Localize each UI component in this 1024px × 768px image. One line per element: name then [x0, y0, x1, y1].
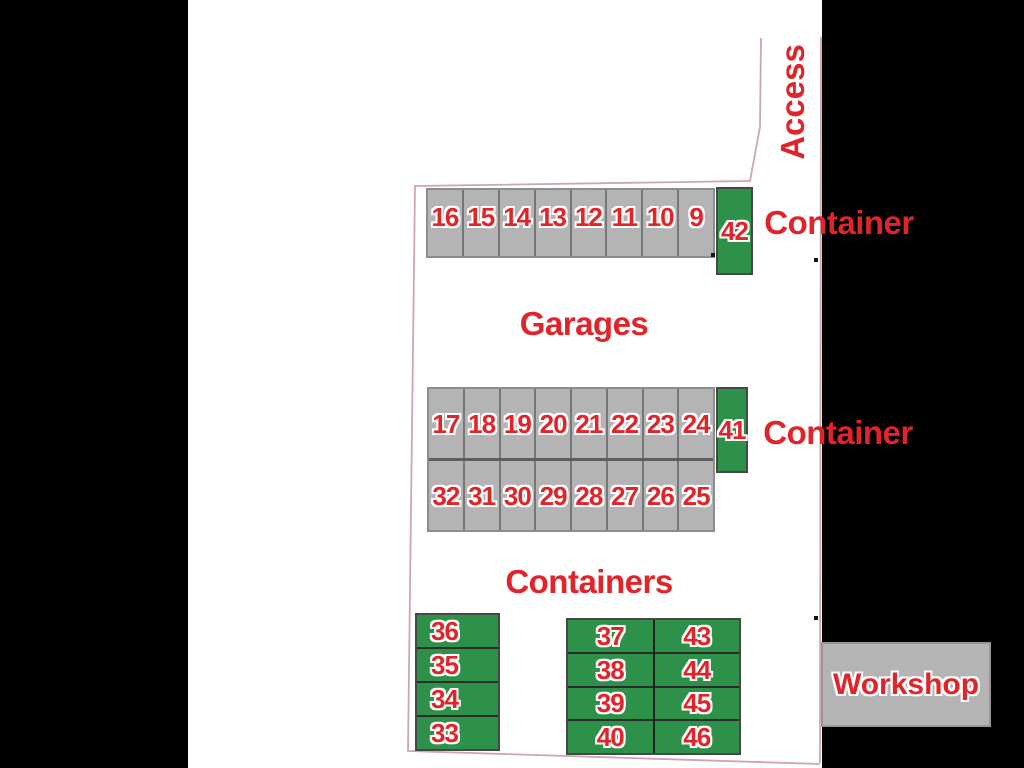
workshop-building: Workshop — [821, 642, 991, 727]
garage-number: 14 — [503, 204, 530, 230]
garage-cell-17: 17 — [429, 389, 463, 458]
garage-number: 25 — [683, 483, 710, 509]
container-number: 43 — [683, 623, 710, 649]
container-cell-46: 46 — [655, 719, 740, 753]
garage-number: 21 — [575, 411, 602, 437]
garage-number: 29 — [540, 483, 567, 509]
garage-number: 28 — [575, 483, 602, 509]
garage-number: 11 — [612, 204, 638, 230]
container-top-label: Container — [764, 204, 914, 242]
garage-cell-21: 21 — [570, 389, 606, 458]
garage-number: 13 — [539, 204, 566, 230]
garage-number: 10 — [647, 204, 674, 230]
container-number: 39 — [597, 690, 624, 716]
garage-cell-24: 24 — [677, 389, 713, 458]
containers-middle-col1: 37 38 39 40 — [568, 620, 653, 753]
garage-cell-25: 25 — [677, 461, 713, 530]
garage-cell-30: 30 — [499, 461, 535, 530]
garage-number: 27 — [611, 483, 638, 509]
garage-cell-16: 16 — [428, 190, 462, 256]
container-number: 45 — [683, 690, 710, 716]
container-number: 40 — [597, 724, 624, 750]
garage-number: 20 — [540, 411, 567, 437]
container-number: 37 — [597, 623, 624, 649]
garage-number: 18 — [468, 411, 495, 437]
garage-number: 15 — [467, 204, 494, 230]
containers-left-block: 36 35 34 33 — [415, 613, 500, 751]
container-cell-38: 38 — [568, 652, 653, 686]
container-cell-35: 35 — [417, 647, 498, 681]
garage-block-middle: 17 18 19 20 21 22 23 24 32 31 30 29 28 2… — [427, 387, 715, 532]
container-number: 42 — [721, 218, 748, 244]
garage-cell-18: 18 — [463, 389, 499, 458]
garage-row-mid-lower: 32 31 30 29 28 27 26 25 — [429, 461, 713, 530]
garage-number: 32 — [432, 483, 459, 509]
garage-cell-26: 26 — [642, 461, 678, 530]
container-cell-39: 39 — [568, 686, 653, 720]
garage-number: 30 — [504, 483, 531, 509]
survey-point-dot — [711, 253, 715, 257]
containers-middle-col2: 43 44 45 46 — [653, 620, 740, 753]
container-number: 44 — [683, 657, 710, 683]
garage-number: 17 — [432, 411, 459, 437]
container-number: 33 — [431, 720, 458, 746]
garage-cell-31: 31 — [463, 461, 499, 530]
garage-number: 31 — [468, 483, 495, 509]
container-number: 34 — [431, 686, 458, 712]
containers-middle-block: 37 38 39 40 43 44 45 46 — [566, 618, 741, 755]
garage-number: 22 — [611, 411, 638, 437]
garages-label: Garages — [520, 305, 649, 343]
access-road-label: Access — [774, 44, 812, 160]
garage-number: 9 — [689, 204, 702, 230]
container-cell-37: 37 — [568, 620, 653, 652]
garage-cell-15: 15 — [462, 190, 498, 256]
workshop-label: Workshop — [833, 668, 979, 702]
container-number: 46 — [683, 724, 710, 750]
garage-cell-11: 11 — [605, 190, 641, 256]
garage-number: 19 — [504, 411, 531, 437]
survey-point-dot — [814, 258, 818, 262]
site-plan-canvas: Access 16 15 14 13 12 11 10 9 42 Contain… — [188, 0, 822, 768]
garage-cell-19: 19 — [499, 389, 535, 458]
garage-cell-32: 32 — [429, 461, 463, 530]
container-42-box: 42 — [716, 187, 753, 275]
garage-row-top: 16 15 14 13 12 11 10 9 — [426, 188, 715, 258]
container-cell-43: 43 — [655, 620, 740, 652]
garage-cell-20: 20 — [534, 389, 570, 458]
garage-cell-27: 27 — [606, 461, 642, 530]
container-cell-44: 44 — [655, 652, 740, 686]
garage-cell-23: 23 — [642, 389, 678, 458]
garage-cell-10: 10 — [641, 190, 677, 256]
container-number: 38 — [597, 657, 624, 683]
container-cell-45: 45 — [655, 686, 740, 720]
container-cell-36: 36 — [417, 615, 498, 647]
garage-number: 26 — [647, 483, 674, 509]
garage-number: 12 — [575, 204, 602, 230]
site-plan-screenshot: Access 16 15 14 13 12 11 10 9 42 Contain… — [0, 0, 1024, 768]
garage-cell-28: 28 — [570, 461, 606, 530]
container-cell-34: 34 — [417, 681, 498, 715]
garage-number: 16 — [431, 204, 458, 230]
container-number: 41 — [719, 417, 746, 443]
garage-cell-9: 9 — [677, 190, 713, 256]
garage-number: 24 — [683, 411, 710, 437]
container-number: 35 — [431, 652, 458, 678]
garage-number: 23 — [647, 411, 674, 437]
container-number: 36 — [431, 618, 458, 644]
container-cell-40: 40 — [568, 719, 653, 753]
survey-point-dot — [814, 616, 818, 620]
garage-cell-29: 29 — [534, 461, 570, 530]
container-cell-33: 33 — [417, 715, 498, 749]
garage-cell-14: 14 — [498, 190, 534, 256]
garage-row-mid-upper: 17 18 19 20 21 22 23 24 — [429, 389, 713, 461]
garage-cell-12: 12 — [570, 190, 606, 256]
containers-label: Containers — [505, 563, 672, 601]
garage-cell-22: 22 — [606, 389, 642, 458]
garage-cell-13: 13 — [534, 190, 570, 256]
container-mid-label: Container — [763, 414, 913, 452]
container-41-box: 41 — [716, 387, 748, 473]
